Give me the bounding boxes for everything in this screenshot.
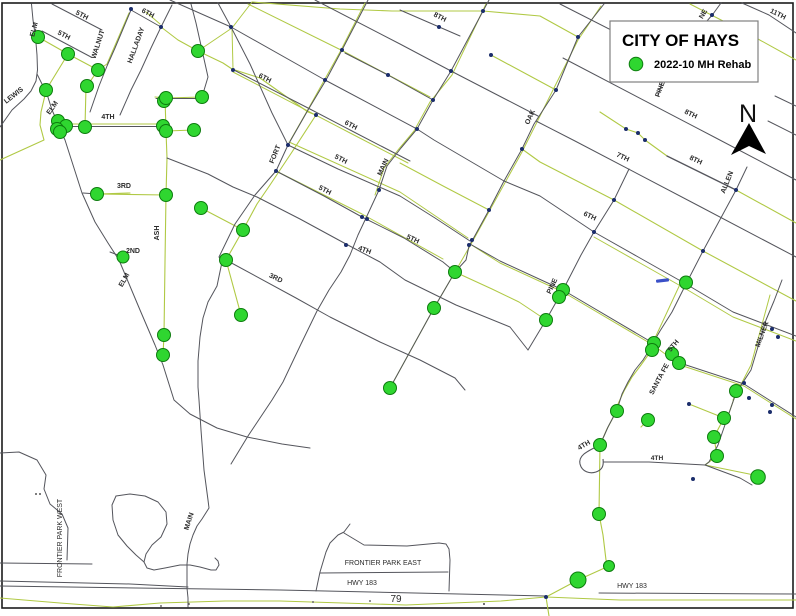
svg-text:ASH: ASH — [154, 226, 161, 241]
svg-text:FRONTIER PARK EAST: FRONTIER PARK EAST — [345, 560, 422, 567]
svg-text:HWY 183: HWY 183 — [347, 580, 377, 587]
svg-text:N: N — [739, 100, 757, 128]
svg-text:2022-10 MH Rehab: 2022-10 MH Rehab — [654, 59, 751, 71]
svg-text:4TH: 4TH — [101, 114, 114, 121]
svg-text:2ND: 2ND — [126, 248, 140, 255]
svg-text:CITY OF HAYS: CITY OF HAYS — [622, 31, 739, 50]
svg-text:FRONTIER PARK WEST: FRONTIER PARK WEST — [57, 498, 64, 577]
svg-text:HWY 183: HWY 183 — [617, 583, 647, 590]
svg-text:3RD: 3RD — [117, 183, 131, 190]
svg-text:79: 79 — [390, 594, 402, 605]
svg-text:4TH: 4TH — [651, 455, 664, 462]
